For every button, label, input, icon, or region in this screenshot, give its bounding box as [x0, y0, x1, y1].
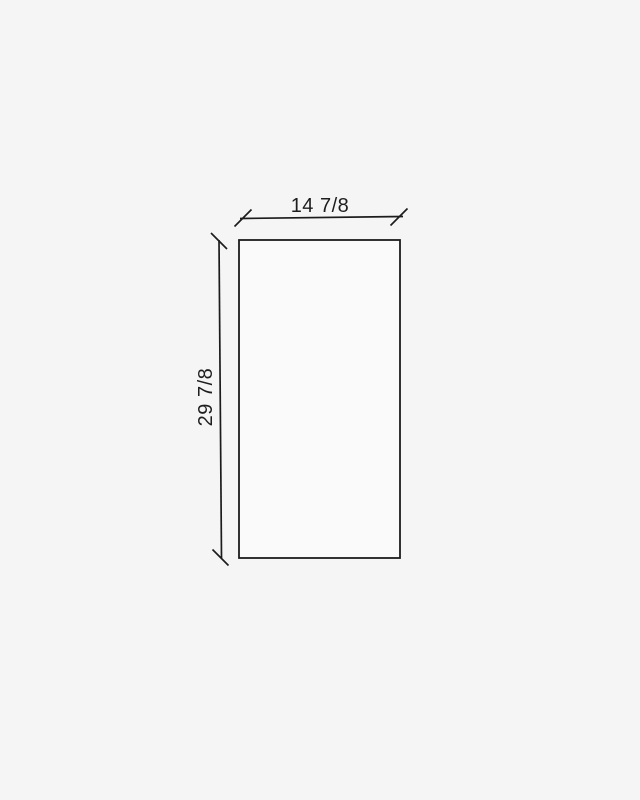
height-dimension-tick-bottom	[213, 550, 229, 566]
width-dimension-label: 14 7/8	[291, 195, 350, 217]
diagram-canvas: 14 7/8 29 7/8	[0, 0, 640, 800]
panel-outline	[239, 240, 400, 558]
dimension-diagram: 14 7/8 29 7/8	[0, 0, 640, 800]
height-dimension-line	[219, 240, 222, 558]
width-dimension: 14 7/8	[235, 195, 408, 227]
height-dimension: 29 7/8	[195, 233, 229, 566]
height-dimension-label: 29 7/8	[195, 368, 217, 427]
